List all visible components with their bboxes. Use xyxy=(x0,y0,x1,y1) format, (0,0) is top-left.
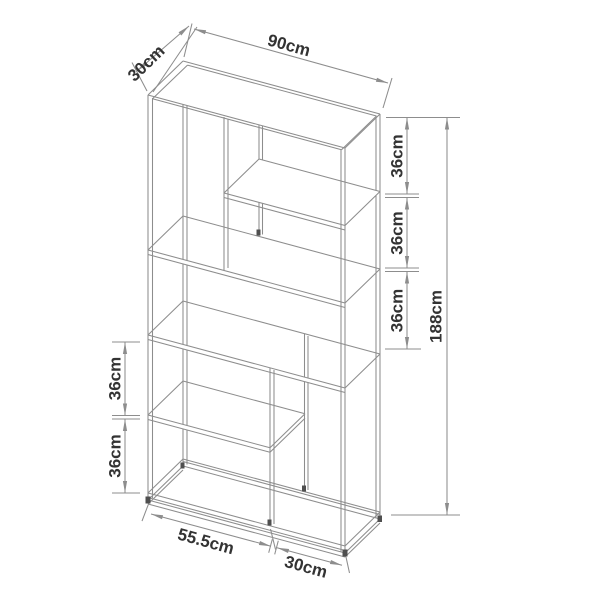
bookshelf-line-art xyxy=(146,61,383,557)
bookshelf-dimension-diagram: 90cm 30cm 36cm 36cm 36cm 188cm 36cm 36cm… xyxy=(0,0,600,600)
label-total-height: 188cm xyxy=(426,290,445,343)
label-bottom-left-width: 55.5cm xyxy=(176,525,237,559)
label-right-36-2: 36cm xyxy=(387,211,406,254)
label-right-36-1: 36cm xyxy=(387,134,406,177)
label-left-36-1: 36cm xyxy=(105,357,124,400)
technical-drawing-canvas: 90cm 30cm 36cm 36cm 36cm 188cm 36cm 36cm… xyxy=(0,0,600,600)
label-right-36-3: 36cm xyxy=(387,289,406,332)
label-left-36-2: 36cm xyxy=(105,434,124,477)
label-bottom-right-width: 30cm xyxy=(282,552,329,582)
